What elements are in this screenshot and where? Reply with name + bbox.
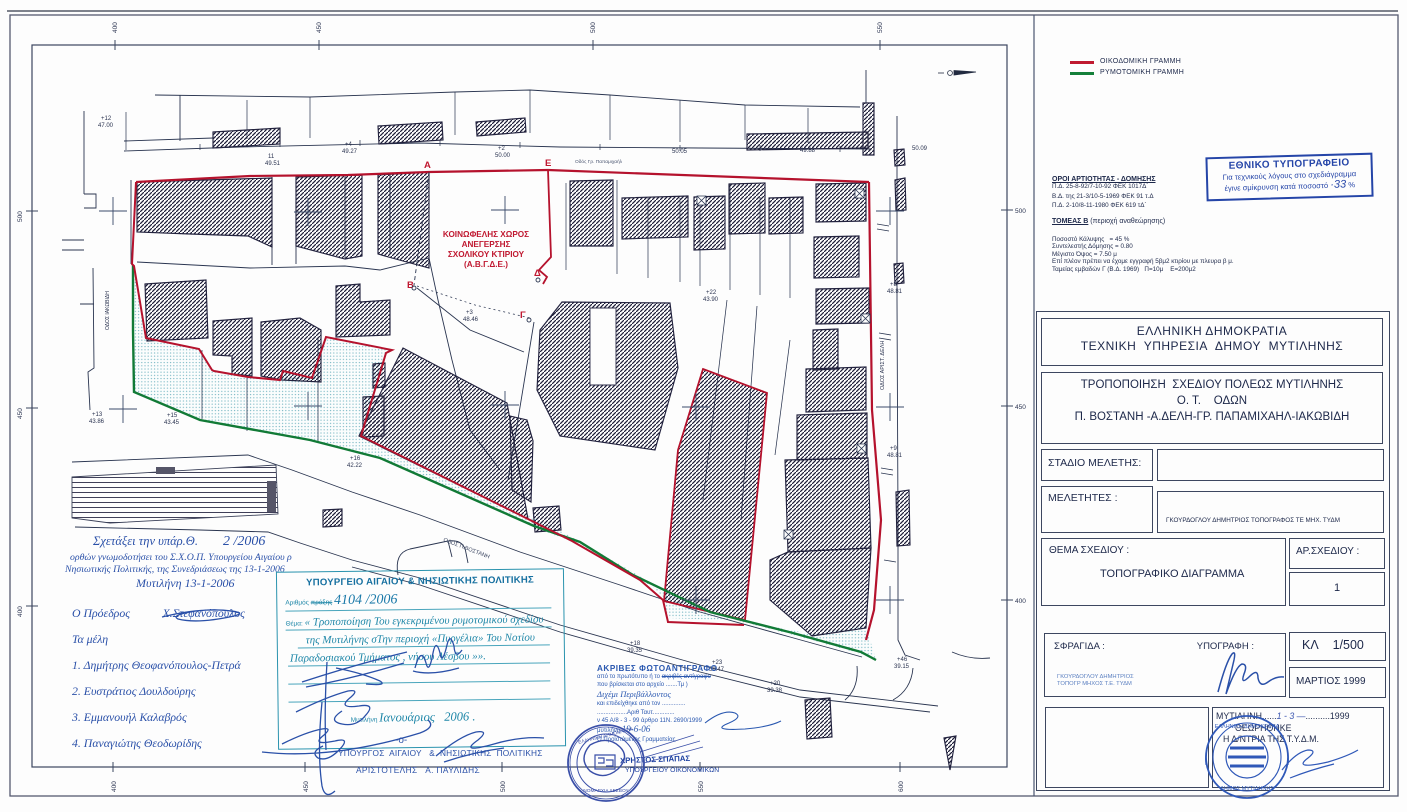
svg-text:ΔΗΜΟΣ ΜΥΤΙΛΗΝΗΣ: ΔΗΜΟΣ ΜΥΤΙΛΗΝΗΣ [1220, 786, 1274, 792]
svg-text:ΕΛΛΗΝΙΚΗ ΔΗΜΟΚΡΑΤΙΑ: ΕΛΛΗΝΙΚΗ ΔΗΜΟΚΡΑΤΙΑ [1215, 724, 1280, 730]
svg-text:ΕΛΛΗΝΙΚΗ ΔΗΜΟΚΡΑΤΙΑ: ΕΛΛΗΝΙΚΗ ΔΗΜΟΚΡΑΤΙΑ [578, 726, 635, 746]
svg-text:ΝΟΜΑΡΧΙΑ ΛΕΣΒΟΥ: ΝΟΜΑΡΧΙΑ ΛΕΣΒΟΥ [583, 788, 629, 794]
